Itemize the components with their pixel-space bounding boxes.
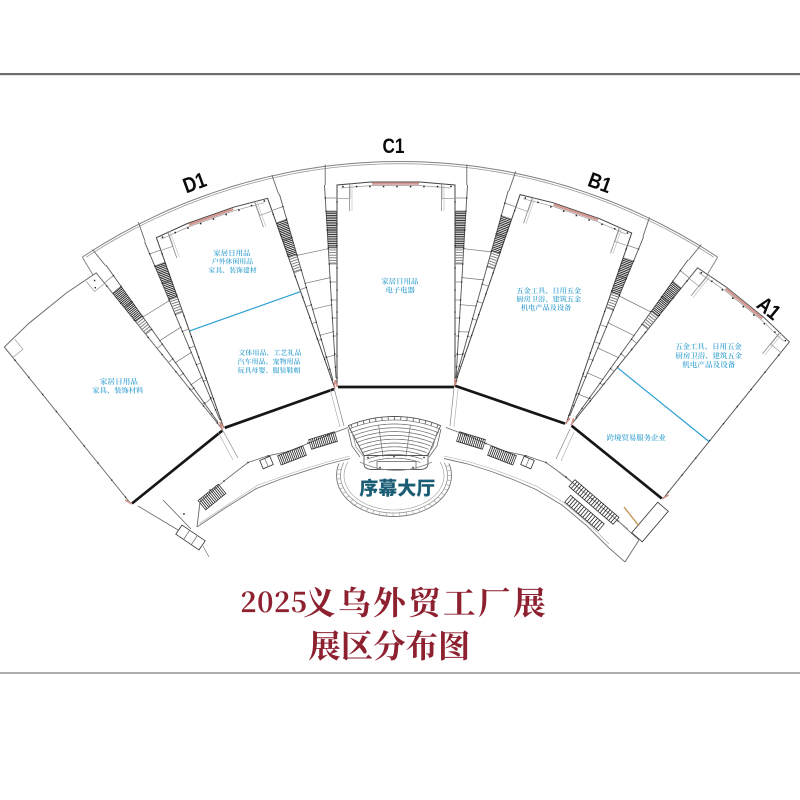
svg-text:C1: C1 [383,134,405,158]
